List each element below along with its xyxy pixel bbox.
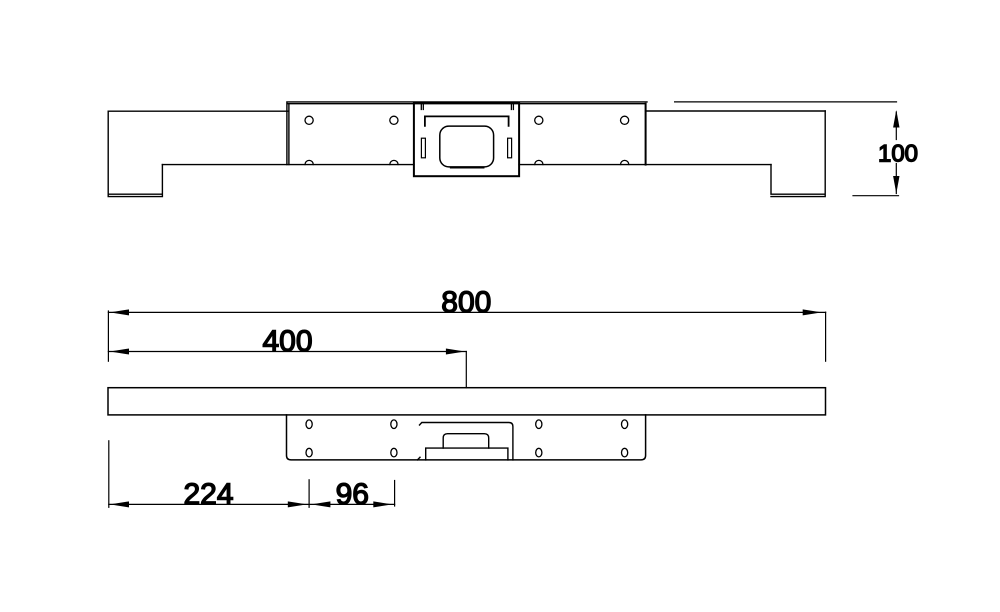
svg-text:100: 100 [878,141,918,168]
svg-text:400: 400 [262,325,312,358]
svg-text:800: 800 [441,286,491,319]
svg-text:96: 96 [336,478,369,511]
svg-text:224: 224 [183,478,233,511]
